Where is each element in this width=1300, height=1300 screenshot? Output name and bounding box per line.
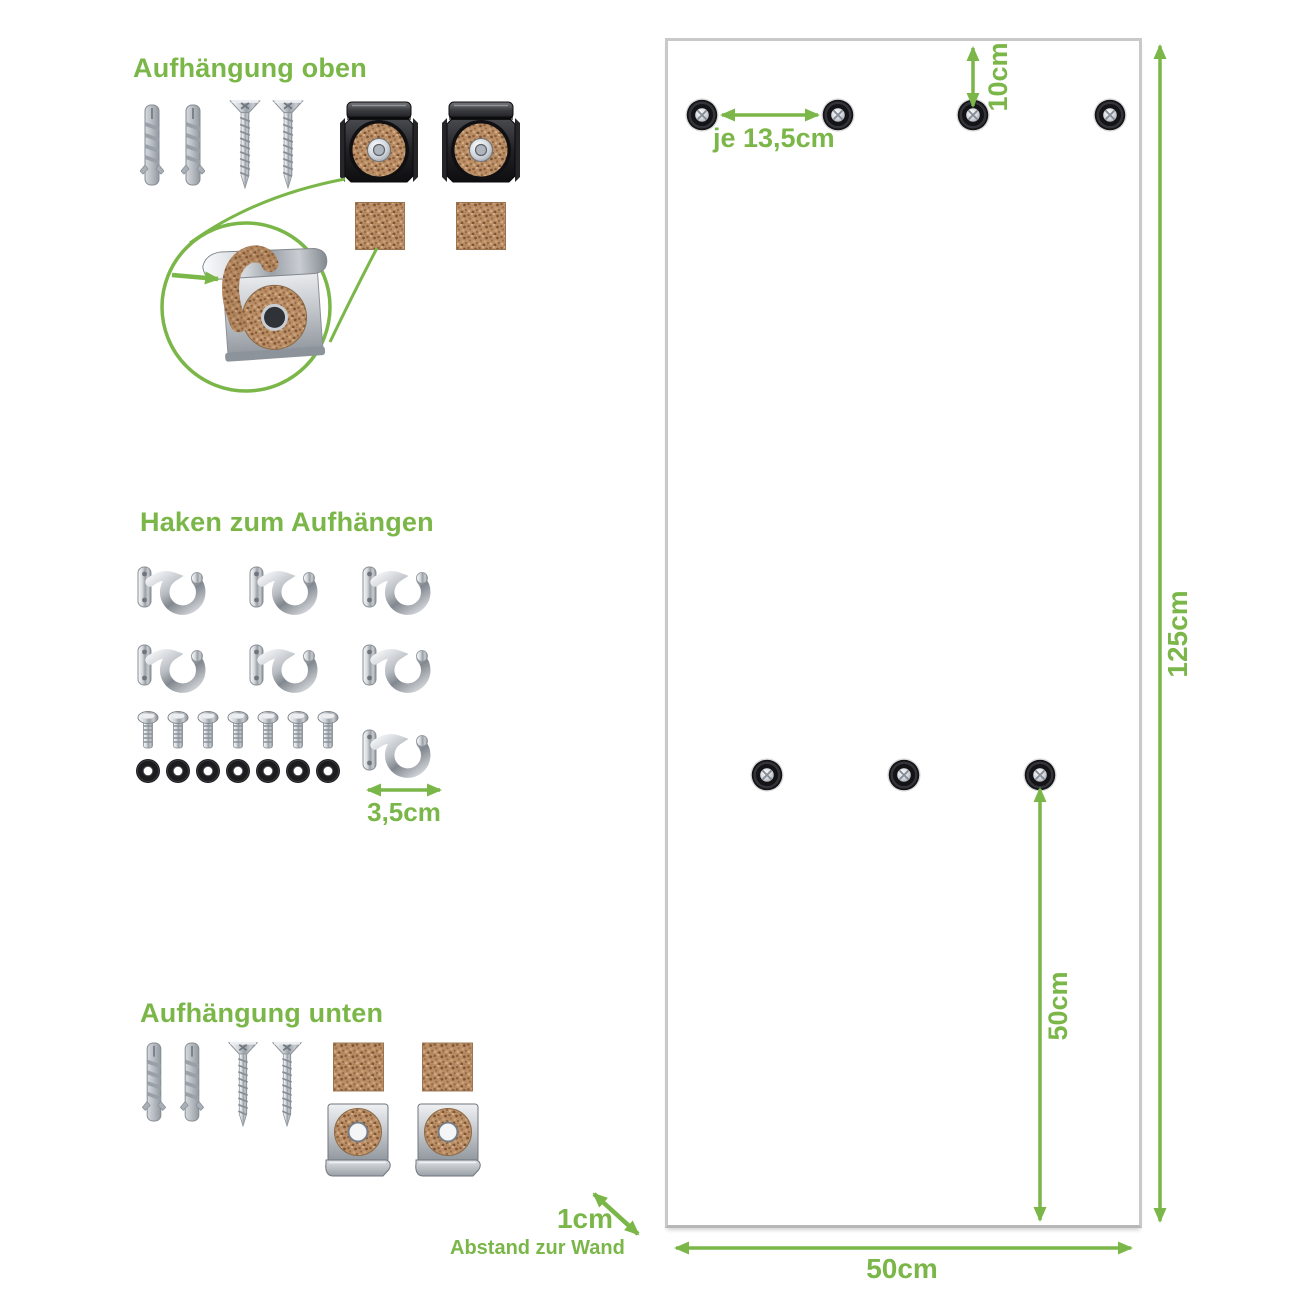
screw-icon (271, 98, 305, 190)
section-title-hooks: Haken zum Aufhängen (140, 507, 434, 538)
hook-size-label: 3,5cm (354, 797, 454, 828)
wall-distance-label: 1cm (523, 1203, 613, 1235)
bolt-icon (257, 711, 279, 751)
washer-icon (315, 758, 341, 784)
washer-icon (255, 758, 281, 784)
mounting-hole (1093, 98, 1127, 132)
cup-hook-icon (360, 551, 444, 623)
bolt-icon (137, 711, 159, 751)
washer-icon (165, 758, 191, 784)
cup-hook-icon (135, 551, 219, 623)
mounting-clip-icon (439, 101, 523, 189)
cup-hook-icon (247, 629, 331, 701)
bolt-icon (287, 711, 309, 751)
mounting-instructions-diagram: Aufhängung oben Haken zum Aufhängen 3,5c… (0, 0, 1300, 1300)
cork-pad-icon (355, 202, 405, 250)
top-offset-label: 10cm (983, 37, 1013, 117)
cork-pad-icon (422, 1042, 473, 1092)
mounting-hole (1023, 758, 1057, 792)
bolt-icon (317, 711, 339, 751)
screw-icon (226, 1040, 260, 1128)
section-title-bottom-mounting: Aufhängung unten (140, 998, 383, 1029)
section-title-top-mounting: Aufhängung oben (133, 53, 367, 84)
screw-icon (270, 1040, 304, 1128)
cup-hook-icon (247, 551, 331, 623)
mounting-clip-bottom-icon (325, 1102, 391, 1180)
panel-width-label: 50cm (852, 1253, 952, 1285)
bottom-section-label: 50cm (1044, 966, 1072, 1046)
detail-magnifier-circle (162, 223, 333, 391)
glass-panel (665, 38, 1142, 1228)
washer-icon (135, 758, 161, 784)
cup-hook-icon (135, 629, 219, 701)
cup-hook-icon (360, 714, 444, 786)
bolt-icon (197, 711, 219, 751)
panel-height-label: 125cm (1163, 588, 1193, 680)
wall-plug-icon (181, 103, 205, 187)
hole-spacing-label: je 13,5cm (713, 123, 835, 154)
mounting-hole (887, 758, 921, 792)
washer-icon (195, 758, 221, 784)
wall-plug-icon (180, 1041, 204, 1123)
wall-plug-icon (142, 1041, 166, 1123)
callout-line-cork (330, 248, 377, 342)
wall-plug-icon (140, 103, 164, 187)
cork-pad-icon (456, 202, 506, 250)
bolt-icon (227, 711, 249, 751)
callout-line-clip (190, 179, 345, 243)
cup-hook-icon (360, 629, 444, 701)
cork-pad-icon (333, 1042, 384, 1092)
screw-icon (228, 98, 262, 190)
mounting-hole (750, 758, 784, 792)
mounting-clip-icon (337, 101, 421, 189)
mounting-clip-bottom-icon (415, 1102, 481, 1180)
detail-pointer-arrow (172, 275, 218, 279)
washer-icon (285, 758, 311, 784)
bolt-icon (167, 711, 189, 751)
wall-distance-caption: Abstand zur Wand (450, 1237, 625, 1260)
washer-icon (225, 758, 251, 784)
